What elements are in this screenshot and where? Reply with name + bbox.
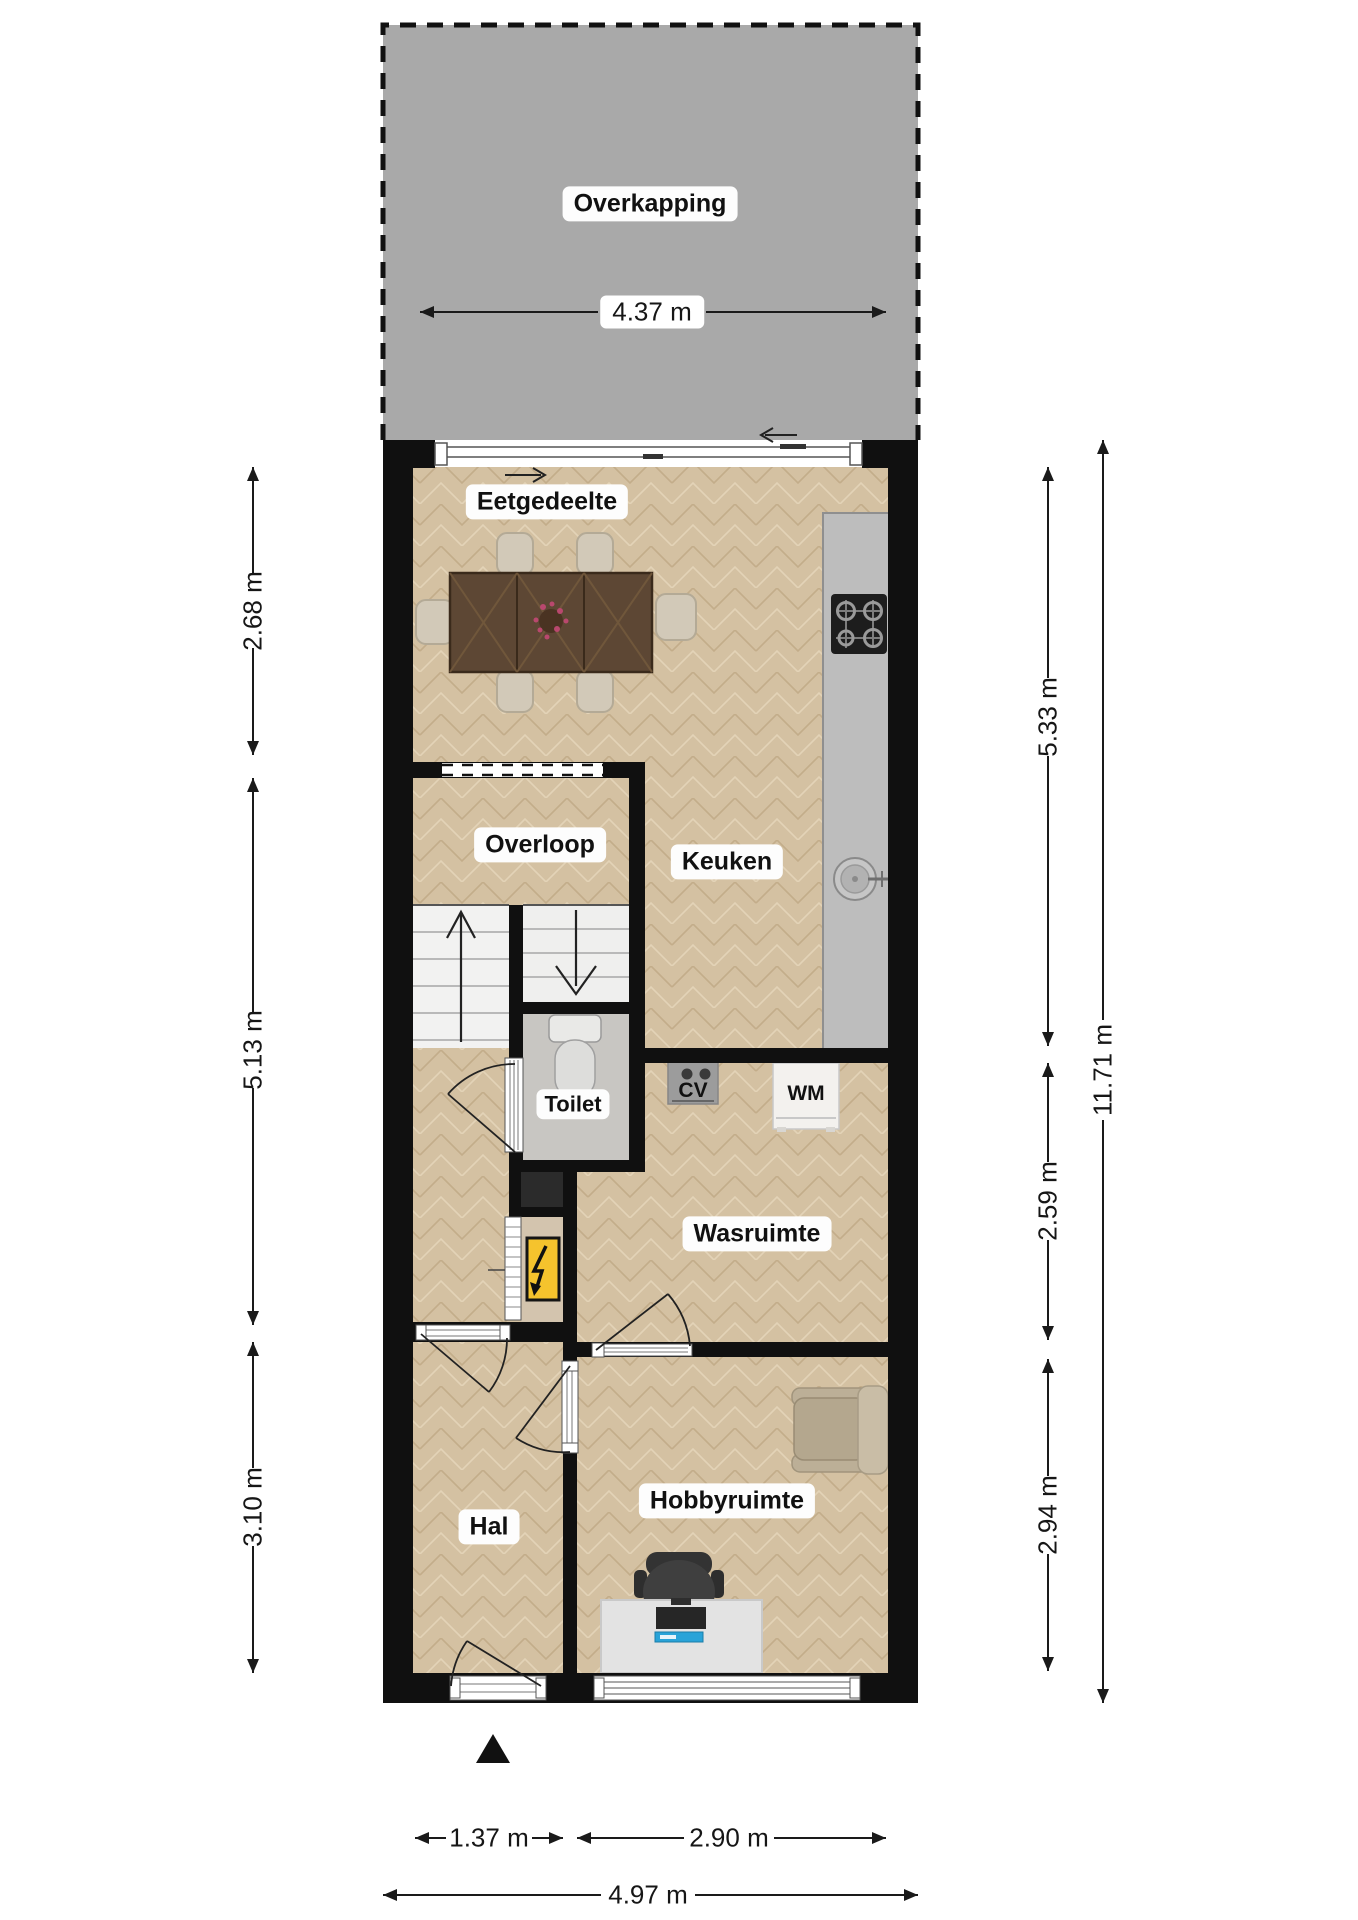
room-label-keuken: Keuken	[671, 844, 783, 879]
entrance-marker-icon	[476, 1734, 510, 1763]
floorplan-drawing	[0, 0, 1358, 1920]
room-label-overkapping: Overkapping	[563, 186, 738, 221]
kitchen-counter	[822, 512, 888, 1048]
dim-left-1: 2.68 m	[238, 571, 269, 651]
dim-overkapping-width: 4.37 m	[600, 296, 704, 329]
dim-bottom-total: 4.97 m	[608, 1880, 688, 1911]
armchair	[792, 1386, 888, 1474]
dim-left-2: 5.13 m	[238, 1010, 269, 1090]
dim-right-1: 5.33 m	[1033, 677, 1064, 757]
dim-bottom-1: 1.37 m	[449, 1823, 529, 1854]
dim-right-total: 11.71 m	[1088, 1024, 1119, 1116]
toilet-fixture	[549, 1015, 601, 1098]
overkapping-area	[383, 25, 918, 440]
closet	[521, 1172, 563, 1207]
dim-right-2: 2.59 m	[1033, 1161, 1064, 1241]
floorplan-canvas: Overkapping Eetgedeelte Overloop Keuken …	[0, 0, 1358, 1920]
dining-table	[450, 573, 652, 672]
room-label-toilet: Toilet	[536, 1089, 609, 1119]
keyboard-icon	[655, 1632, 703, 1642]
room-label-hal: Hal	[459, 1509, 520, 1544]
room-label-wasruimte: Wasruimte	[683, 1216, 832, 1251]
dim-right-3: 2.94 m	[1033, 1475, 1064, 1555]
room-label-hobbyruimte: Hobbyruimte	[639, 1483, 815, 1518]
room-label-overloop: Overloop	[474, 827, 606, 862]
room-label-eetgedeelte: Eetgedeelte	[466, 484, 628, 519]
electrical-panel-icon	[527, 1238, 559, 1300]
sliding-door-window	[435, 441, 862, 467]
cv-label: CV	[678, 1079, 707, 1103]
window-hobbyruimte	[594, 1676, 860, 1700]
dim-left-3: 3.10 m	[238, 1467, 269, 1547]
glass-partition	[442, 763, 603, 777]
dim-bottom-2: 2.90 m	[689, 1823, 769, 1854]
gas-hob-icon	[831, 594, 887, 654]
wm-label: WM	[787, 1082, 824, 1106]
